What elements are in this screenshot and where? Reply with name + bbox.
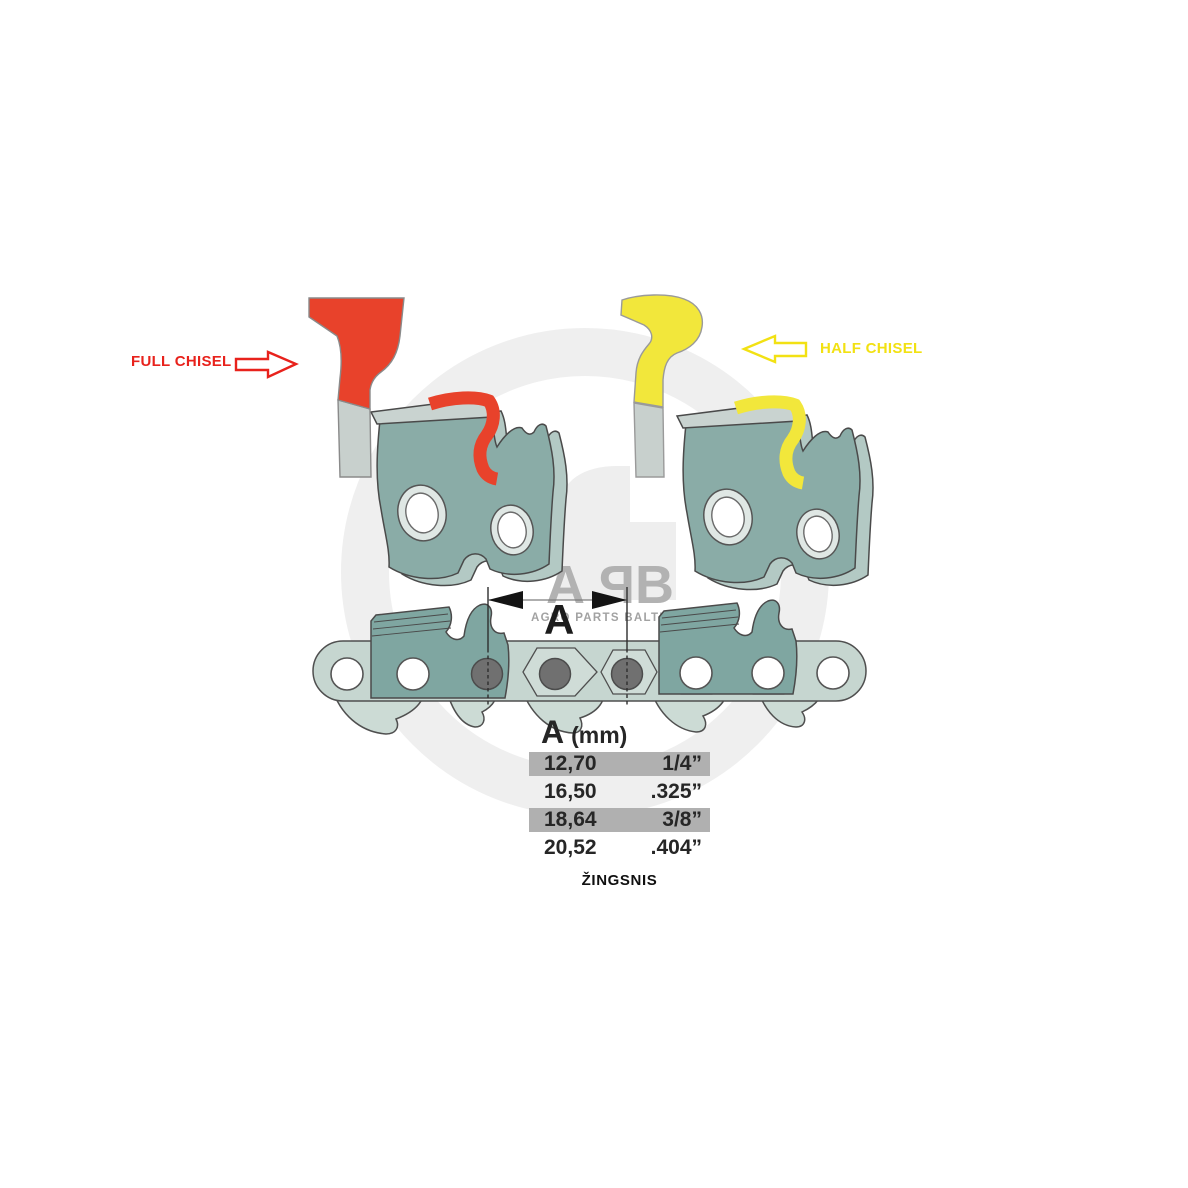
pitch-table-caption: ŽINGSNIS bbox=[529, 872, 710, 889]
pitch-mm-value: 12,70 bbox=[544, 752, 597, 776]
half-chisel-label: HALF CHISEL bbox=[820, 340, 922, 357]
diagram-artwork bbox=[0, 0, 1188, 1188]
link-front-face bbox=[377, 404, 554, 579]
pitch-inch-value: .325” bbox=[651, 780, 702, 804]
chainsaw-chain-pitch-diagram: APB AGRO PARTS BALTIJA bbox=[0, 0, 1188, 1188]
pitch-mm-value: 18,64 bbox=[544, 808, 597, 832]
pitch-dimension-label: A bbox=[544, 599, 574, 641]
half-chisel-cross-section bbox=[621, 295, 702, 407]
dimension-arrowhead-left bbox=[488, 591, 523, 609]
pitch-table-row: 20,52 .404” bbox=[529, 836, 710, 860]
full-chisel-arrow-icon bbox=[236, 352, 296, 377]
half-chisel-arrow-icon bbox=[744, 336, 806, 362]
cutter-link-3d-full-chisel bbox=[371, 397, 567, 586]
pitch-table-header-symbol: A bbox=[541, 716, 564, 748]
full-chisel-label: FULL CHISEL bbox=[131, 353, 232, 370]
pitch-table-header: A (mm) bbox=[529, 711, 710, 748]
pitch-mm-value: 16,50 bbox=[544, 780, 597, 804]
pitch-inch-value: 1/4” bbox=[662, 752, 702, 776]
pitch-table: A (mm) 12,70 1/4” 16,50 .325” 18,64 3/8”… bbox=[529, 711, 710, 889]
profile-shank bbox=[338, 400, 371, 477]
pitch-mm-value: 20,52 bbox=[544, 836, 597, 860]
profile-shank bbox=[634, 403, 664, 477]
pitch-inch-value: .404” bbox=[651, 836, 702, 860]
cutter-link-3d-half-chisel bbox=[677, 401, 873, 590]
dimension-arrowhead-right bbox=[592, 591, 627, 609]
full-chisel-cross-section bbox=[309, 298, 404, 409]
pitch-table-header-unit: (mm) bbox=[571, 724, 627, 748]
pitch-table-row: 12,70 1/4” bbox=[529, 752, 710, 776]
pitch-table-row: 18,64 3/8” bbox=[529, 808, 710, 832]
pitch-rivets bbox=[472, 659, 643, 690]
pitch-table-row: 16,50 .325” bbox=[529, 780, 710, 804]
link-front-face bbox=[683, 408, 860, 583]
pitch-inch-value: 3/8” bbox=[662, 808, 702, 832]
